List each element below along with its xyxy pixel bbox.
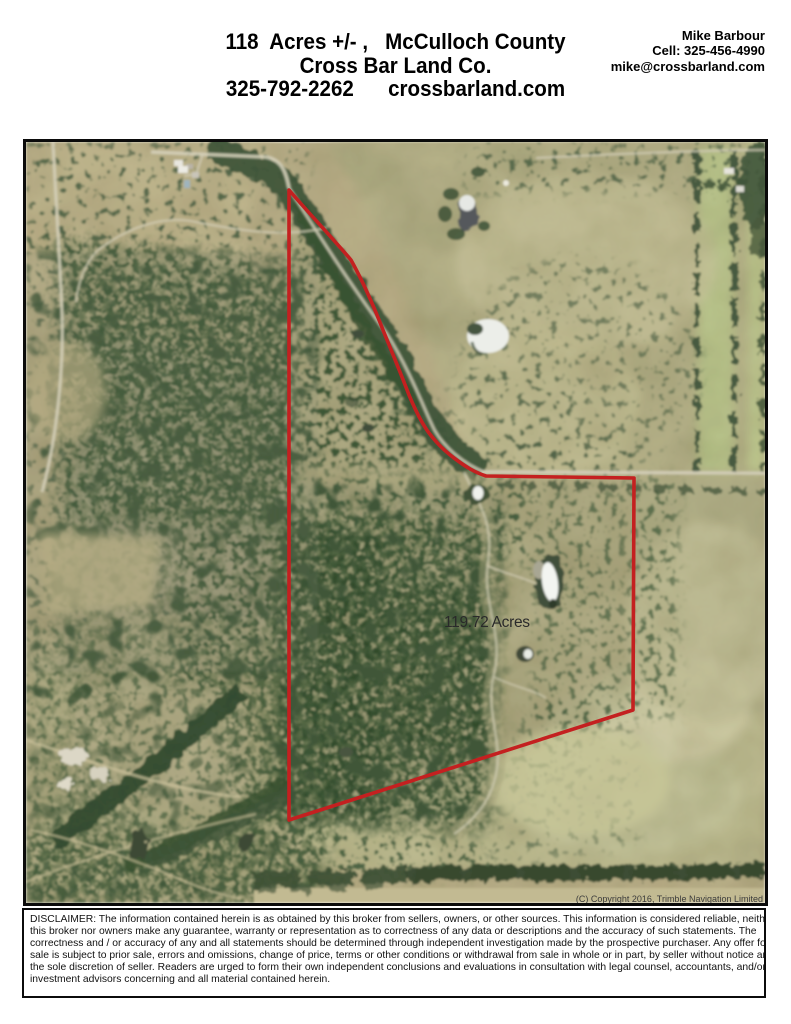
svg-text:119.72 Acres: 119.72 Acres (444, 614, 530, 631)
svg-text:(C) Copyright 2016, Trimble Na: (C) Copyright 2016, Trimble Navigation L… (576, 894, 763, 903)
